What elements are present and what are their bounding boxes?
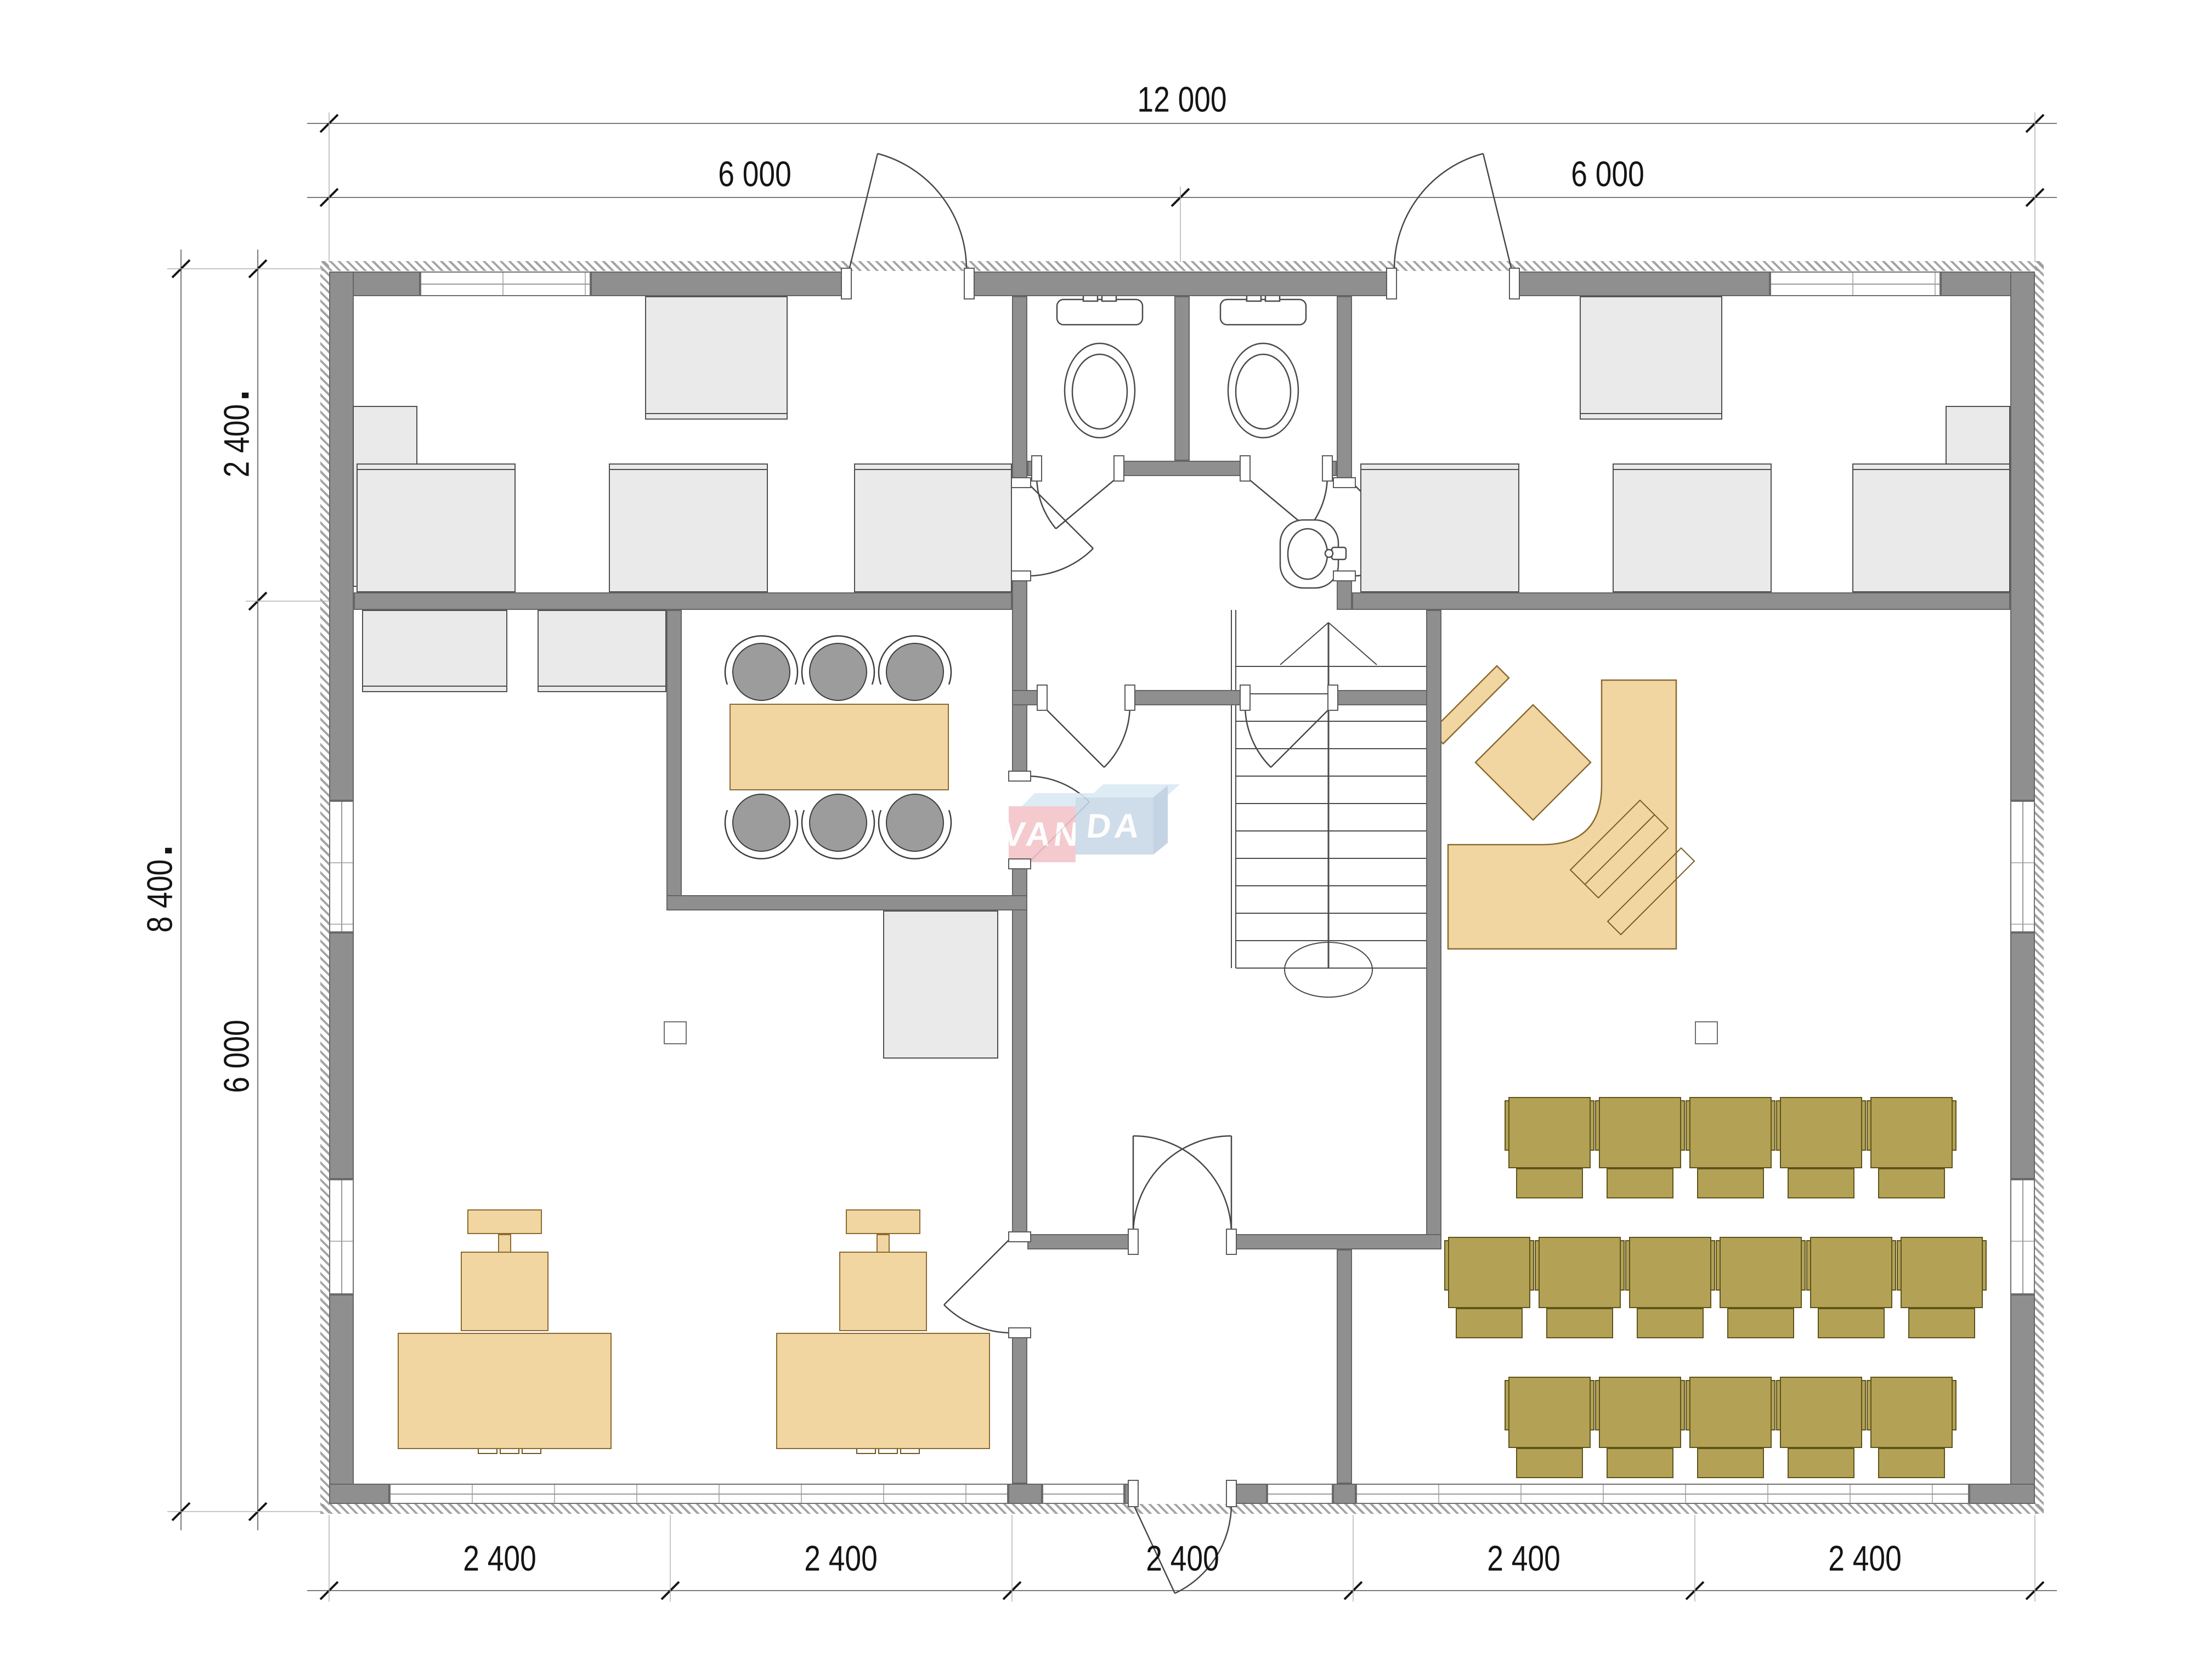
watermark-text-left: VAN	[1006, 806, 1079, 862]
column	[664, 1021, 687, 1044]
door-jamb	[1509, 268, 1520, 299]
window	[1770, 271, 1941, 296]
meeting-table	[730, 704, 949, 790]
wall	[1119, 461, 1245, 476]
chair-part	[1680, 1380, 1685, 1430]
chair-part	[1529, 1240, 1534, 1291]
wall	[1333, 1484, 1356, 1504]
door-jamb	[1226, 1229, 1237, 1255]
cabinet	[362, 610, 507, 692]
cabinet	[883, 910, 998, 1059]
chair-part	[1516, 1448, 1583, 1478]
window	[1356, 1484, 1969, 1504]
chair-part	[1625, 1240, 1630, 1291]
window	[1267, 1484, 1333, 1504]
door-opening	[846, 271, 969, 296]
audience-chair	[1535, 1237, 1625, 1338]
chair-part	[1680, 1100, 1685, 1151]
chair-part	[1448, 1237, 1530, 1308]
wall	[1352, 592, 2010, 610]
chair-part	[1607, 1448, 1673, 1478]
audience-chair	[1595, 1377, 1685, 1478]
chair-part	[1952, 1100, 1956, 1151]
audience-chair	[1595, 1097, 1685, 1198]
door-jamb	[1226, 1480, 1237, 1507]
cabinet	[1613, 463, 1772, 592]
door-jamb	[1333, 570, 1356, 581]
chair-part	[1897, 1240, 1902, 1291]
column	[1695, 1021, 1718, 1044]
chair-part	[1901, 1237, 1983, 1308]
audience-chair	[1776, 1097, 1866, 1198]
wall	[1012, 296, 1027, 483]
chair-part	[1697, 1448, 1764, 1478]
chair-part	[1801, 1240, 1806, 1291]
chair-part	[1535, 1240, 1540, 1291]
door-jamb	[1008, 771, 1031, 782]
window	[389, 1484, 1008, 1504]
chair-part	[1908, 1308, 1975, 1338]
chair-part	[1861, 1100, 1866, 1151]
watermark-box-blue: DA	[1076, 797, 1153, 855]
cabinet	[854, 463, 1012, 592]
cabinet	[357, 463, 516, 592]
text-anchor-dot	[242, 393, 248, 398]
window	[2010, 801, 2035, 932]
door-jamb	[1128, 1480, 1139, 1507]
chair-part	[1780, 1377, 1862, 1448]
chair-part	[1607, 1168, 1673, 1198]
audience-chair	[1505, 1097, 1594, 1198]
audience-chair	[1897, 1237, 1987, 1338]
window	[2010, 1179, 2035, 1294]
office-chair-icon	[1475, 705, 1591, 820]
wall	[1012, 576, 1027, 776]
door-jamb	[964, 268, 975, 299]
window	[329, 801, 354, 932]
watermark-box-pink: VAN	[1009, 806, 1076, 862]
chair-part	[1710, 1240, 1715, 1291]
chair-part	[1771, 1380, 1775, 1430]
wall	[354, 592, 1012, 610]
wall	[1130, 690, 1245, 705]
door-jamb	[1128, 1229, 1139, 1255]
chair-part	[1508, 1097, 1591, 1168]
chair-part	[1595, 1380, 1600, 1430]
dim-bottom-1: 2 400	[463, 1541, 536, 1577]
watermark-text-right: DA	[1073, 797, 1157, 855]
wall	[969, 271, 1392, 296]
wall	[1337, 296, 1352, 483]
chair-part	[1599, 1097, 1681, 1168]
audience-chair	[1776, 1377, 1866, 1478]
stairs-up-arrow	[1231, 610, 1426, 997]
office-chair-icon	[498, 1234, 511, 1253]
chair-part	[1982, 1240, 1987, 1291]
watermark-box-side	[1153, 785, 1168, 855]
wall	[329, 271, 354, 801]
dim-side-upper: 2 400	[219, 393, 255, 478]
chair-part	[1720, 1237, 1802, 1308]
dim-side-lower: 6 000	[219, 1020, 255, 1093]
chair-part	[1806, 1240, 1811, 1291]
chair-part	[1727, 1308, 1794, 1338]
desk	[776, 1333, 990, 1449]
wall	[666, 895, 1027, 910]
desk	[398, 1333, 612, 1449]
wall	[2010, 1294, 2035, 1504]
wall	[329, 1294, 354, 1504]
wall	[591, 271, 846, 296]
chair-part	[1716, 1240, 1721, 1291]
chair-part	[1870, 1097, 1953, 1168]
office-chair-icon	[461, 1252, 548, 1331]
chair-part	[1595, 1100, 1600, 1151]
chair-part	[1599, 1377, 1681, 1448]
wall	[2010, 932, 2035, 1179]
wall	[1337, 1249, 1352, 1484]
audience-chair	[1716, 1237, 1806, 1338]
wall	[1012, 1333, 1027, 1484]
text-anchor-dot	[165, 848, 172, 853]
chair-part	[1952, 1380, 1956, 1430]
chair-part	[1776, 1100, 1781, 1151]
office-chair-icon	[846, 1209, 920, 1234]
dim-top-right-half: 6 000	[1571, 157, 1644, 193]
chair-part	[1508, 1377, 1591, 1448]
chair-part	[1771, 1100, 1775, 1151]
wall	[1231, 1234, 1441, 1249]
door-jamb	[1031, 455, 1042, 482]
wall	[1174, 296, 1190, 461]
chair-part	[1686, 1380, 1690, 1430]
chair-part	[1867, 1380, 1871, 1430]
wall	[1027, 1234, 1133, 1249]
dim-top-total: 12 000	[1137, 82, 1226, 118]
dim-bottom-3: 2 400	[1146, 1541, 1219, 1577]
wall	[1333, 690, 1441, 705]
cabinet	[1852, 463, 2010, 592]
chair-part	[1810, 1237, 1892, 1308]
chair-part	[1870, 1377, 1953, 1448]
door-jamb	[1386, 268, 1397, 299]
audience-chair	[1625, 1237, 1715, 1338]
cabinet	[538, 610, 666, 692]
dim-top-left-half: 6 000	[718, 157, 791, 193]
chair-part	[1697, 1168, 1764, 1198]
chair-part	[1788, 1168, 1854, 1198]
audience-chair	[1686, 1097, 1775, 1198]
dim-bottom-5: 2 400	[1828, 1541, 1902, 1577]
audience-chair	[1505, 1377, 1594, 1478]
chair-part	[1788, 1448, 1854, 1478]
chair-part	[1861, 1380, 1866, 1430]
wall	[1008, 1484, 1042, 1504]
cabinet	[645, 296, 788, 420]
wall	[1514, 271, 1770, 296]
chair-part	[1878, 1448, 1945, 1478]
dim-bottom-4: 2 400	[1487, 1541, 1560, 1577]
door-opening	[1392, 271, 1514, 296]
audience-chair	[1806, 1237, 1896, 1338]
cabinet	[609, 463, 768, 592]
chair-part	[1539, 1237, 1621, 1308]
chair-part	[1878, 1168, 1945, 1198]
wall	[1969, 1484, 2035, 1504]
chair-part	[1620, 1240, 1625, 1291]
office-chair-icon	[839, 1252, 927, 1331]
chair-part	[1505, 1100, 1509, 1151]
window	[329, 1179, 354, 1294]
door-jamb	[841, 268, 852, 299]
chair-part	[1818, 1308, 1885, 1338]
door-jamb	[1322, 455, 1333, 482]
floor-plan-canvas: 12 000 6 000 6 000 8 400 2 400 6 000 2 4…	[0, 0, 2194, 1680]
chair-part	[1505, 1380, 1509, 1430]
dim-bottom-2: 2 400	[804, 1541, 878, 1577]
wall	[1012, 864, 1027, 1237]
audience-chair	[1686, 1377, 1775, 1478]
chair-part	[1689, 1097, 1772, 1168]
office-chair-icon	[877, 1234, 890, 1253]
door-jamb	[1327, 685, 1338, 711]
chair-part	[1546, 1308, 1613, 1338]
chair-part	[1780, 1097, 1862, 1168]
chair-part	[1444, 1240, 1449, 1291]
chair-part	[1456, 1308, 1523, 1338]
door-jamb	[1333, 477, 1356, 488]
chair-part	[1689, 1377, 1772, 1448]
window	[420, 271, 591, 296]
audience-chair	[1867, 1097, 1956, 1198]
wall	[2010, 271, 2035, 801]
chair-part	[1867, 1100, 1871, 1151]
door-jamb	[1113, 455, 1124, 482]
door-jamb	[1037, 685, 1048, 711]
door-jamb	[1240, 685, 1251, 711]
wall	[329, 1484, 389, 1504]
wall	[1426, 610, 1441, 1249]
door-jamb	[1008, 858, 1031, 869]
chair-part	[1637, 1308, 1704, 1338]
cabinet	[1580, 296, 1722, 420]
window	[1042, 1484, 1124, 1504]
chair-part	[1776, 1380, 1781, 1430]
reception-desk	[1431, 666, 1694, 949]
chair-part	[1516, 1168, 1583, 1198]
door-jamb	[1124, 685, 1135, 711]
chair-part	[1590, 1380, 1594, 1430]
chair-part	[1629, 1237, 1711, 1308]
chair-part	[1891, 1240, 1896, 1291]
wall	[666, 610, 682, 910]
door-opening	[1133, 1484, 1231, 1504]
door-jamb	[1008, 1231, 1031, 1242]
audience-chair	[1867, 1377, 1956, 1478]
office-chair-icon	[467, 1209, 542, 1234]
audience-chair	[1444, 1237, 1534, 1338]
wall	[329, 932, 354, 1179]
chair-part	[1686, 1100, 1690, 1151]
dim-side-total: 8 400	[143, 848, 178, 933]
cabinet	[1360, 463, 1519, 592]
chair-part	[1590, 1100, 1594, 1151]
door-jamb	[1240, 455, 1251, 482]
door-jamb	[1008, 1327, 1031, 1338]
